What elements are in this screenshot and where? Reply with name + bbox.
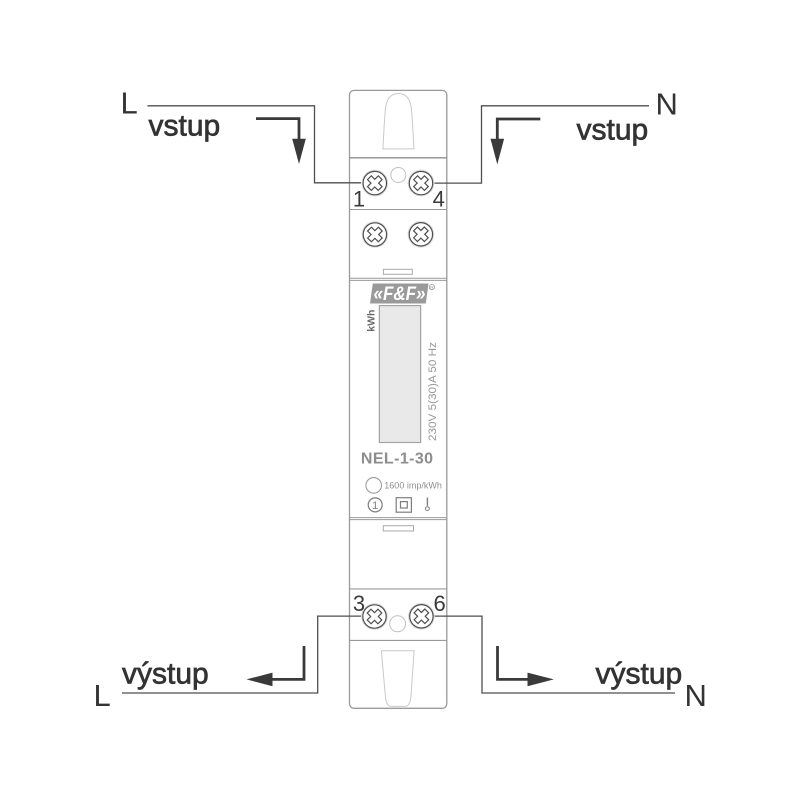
- svg-text:výstup: výstup: [122, 657, 209, 690]
- svg-text:1: 1: [353, 187, 365, 212]
- svg-text:L: L: [94, 678, 111, 713]
- svg-text:kWh: kWh: [365, 310, 377, 332]
- svg-text:N: N: [685, 678, 707, 713]
- svg-text:1600 imp/kWh: 1600 imp/kWh: [384, 480, 442, 490]
- svg-text:vstup: vstup: [577, 113, 649, 146]
- svg-text:230V 5(30)A 50 Hz: 230V 5(30)A 50 Hz: [427, 342, 439, 441]
- svg-text:3: 3: [353, 591, 365, 616]
- svg-text:L: L: [121, 86, 138, 121]
- svg-text:N: N: [656, 87, 678, 122]
- svg-text:NEL-1-30: NEL-1-30: [361, 451, 434, 468]
- svg-text:1: 1: [372, 500, 378, 512]
- svg-text:6: 6: [433, 591, 445, 616]
- svg-text:vstup: vstup: [149, 110, 221, 143]
- svg-text:«F&F»: «F&F»: [374, 284, 426, 305]
- svg-text:4: 4: [433, 187, 445, 212]
- svg-text:výstup: výstup: [596, 657, 683, 690]
